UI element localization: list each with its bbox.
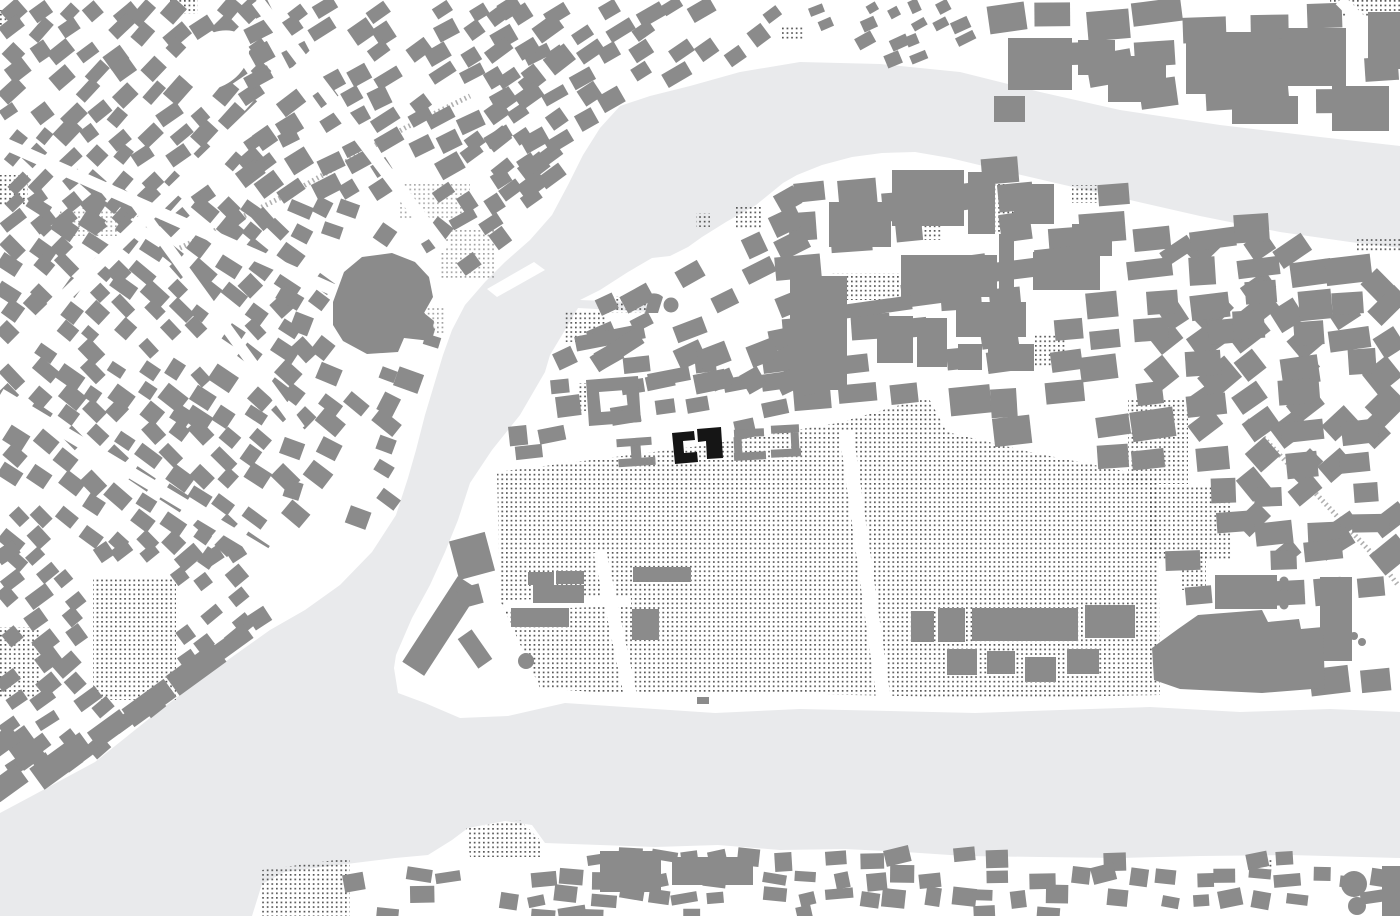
landmark-building bbox=[1320, 577, 1352, 661]
building bbox=[953, 846, 976, 862]
building bbox=[582, 909, 604, 916]
building bbox=[1254, 487, 1282, 507]
landmark-building bbox=[1332, 86, 1389, 131]
building bbox=[1360, 668, 1391, 693]
building bbox=[1186, 392, 1228, 417]
building bbox=[1250, 890, 1271, 910]
building bbox=[1079, 353, 1119, 382]
landmark-building bbox=[533, 585, 584, 603]
building bbox=[1135, 381, 1164, 406]
landmark-building bbox=[1382, 866, 1400, 916]
building bbox=[794, 871, 816, 883]
building bbox=[508, 425, 528, 446]
landmark-building bbox=[1072, 224, 1112, 256]
landmark-building bbox=[911, 611, 934, 642]
landmark-round-structure bbox=[1348, 897, 1366, 915]
landmark-building bbox=[633, 567, 691, 582]
landmark-building bbox=[956, 302, 1026, 337]
building bbox=[1353, 482, 1379, 503]
landmark-building bbox=[791, 432, 800, 449]
building bbox=[774, 852, 792, 872]
building bbox=[655, 398, 676, 415]
building bbox=[1097, 183, 1130, 207]
building bbox=[1132, 226, 1171, 252]
building bbox=[1131, 448, 1165, 470]
building bbox=[1211, 478, 1237, 504]
landmark-building bbox=[1368, 12, 1400, 69]
building bbox=[1233, 213, 1270, 244]
landmark-building bbox=[892, 170, 964, 226]
building bbox=[1050, 349, 1083, 373]
building bbox=[1348, 348, 1377, 375]
building bbox=[1314, 867, 1331, 881]
landmark-building bbox=[987, 651, 1015, 674]
building bbox=[1232, 310, 1265, 340]
building bbox=[553, 884, 577, 903]
landmark-building bbox=[917, 318, 947, 367]
stippled-area bbox=[782, 25, 804, 41]
building bbox=[1106, 888, 1128, 906]
landmark-building bbox=[1232, 96, 1298, 124]
building bbox=[1254, 520, 1293, 547]
building bbox=[1189, 292, 1230, 321]
landmark-building bbox=[968, 172, 995, 234]
building bbox=[973, 889, 993, 900]
building bbox=[1293, 320, 1324, 346]
landmark-building bbox=[1186, 32, 1279, 94]
building bbox=[531, 871, 558, 888]
landmark-building bbox=[1078, 40, 1115, 75]
building bbox=[1307, 3, 1343, 29]
building bbox=[1357, 576, 1385, 598]
landmark-building bbox=[771, 424, 799, 433]
building bbox=[1324, 254, 1373, 286]
landmark-building bbox=[511, 608, 569, 627]
stippled-area bbox=[1072, 185, 1100, 203]
landmark-round-structure bbox=[518, 653, 534, 669]
building bbox=[1010, 890, 1027, 909]
building bbox=[1046, 885, 1069, 904]
landmark-round-structure bbox=[1341, 871, 1367, 897]
landmark-building bbox=[1014, 184, 1054, 224]
building bbox=[1165, 550, 1200, 571]
landmark-building bbox=[672, 857, 753, 885]
building bbox=[1298, 289, 1334, 322]
building bbox=[499, 892, 519, 911]
stippled-area bbox=[735, 206, 763, 229]
building bbox=[1273, 873, 1301, 888]
landmark-building bbox=[734, 428, 764, 438]
building bbox=[986, 870, 1008, 883]
landmark-round-structure bbox=[1358, 638, 1366, 646]
building bbox=[550, 379, 570, 395]
landmark-round-structure bbox=[1280, 577, 1289, 586]
building bbox=[1097, 444, 1130, 470]
building bbox=[342, 872, 366, 893]
landmark-building bbox=[947, 649, 977, 675]
building bbox=[837, 178, 878, 206]
building bbox=[1248, 867, 1271, 879]
building bbox=[918, 872, 941, 889]
building bbox=[1339, 452, 1371, 474]
building bbox=[1085, 291, 1119, 320]
building bbox=[1146, 290, 1179, 316]
building bbox=[1270, 550, 1297, 570]
landmark-building bbox=[790, 276, 847, 390]
building bbox=[1213, 869, 1235, 883]
landmark-building bbox=[938, 608, 965, 642]
landmark-building bbox=[556, 571, 584, 584]
building bbox=[825, 850, 847, 865]
building bbox=[1054, 318, 1084, 341]
landmark-building bbox=[631, 445, 642, 460]
landmark-building bbox=[1025, 657, 1056, 682]
building bbox=[1340, 418, 1379, 446]
building bbox=[559, 868, 584, 886]
landmark-round-structure bbox=[1280, 589, 1289, 598]
landmark-building bbox=[829, 202, 891, 247]
landmark-building bbox=[994, 96, 1025, 122]
landmark-building bbox=[600, 851, 661, 892]
landmark-round-structure bbox=[664, 298, 679, 313]
landmark-building bbox=[528, 572, 554, 585]
landmark-building bbox=[901, 255, 997, 297]
building bbox=[1216, 511, 1249, 534]
building bbox=[1045, 379, 1086, 404]
landmark-building bbox=[958, 344, 982, 370]
building bbox=[1034, 2, 1070, 26]
building bbox=[1303, 539, 1343, 563]
building bbox=[1086, 8, 1131, 41]
landmark-building bbox=[697, 697, 709, 704]
building bbox=[1185, 350, 1222, 377]
building bbox=[1133, 317, 1169, 342]
building bbox=[973, 905, 995, 916]
landmark-building bbox=[771, 448, 801, 458]
building bbox=[1244, 280, 1277, 305]
building bbox=[1197, 873, 1214, 887]
landmark-round-structure bbox=[1280, 601, 1289, 610]
landmark-building bbox=[1108, 56, 1166, 102]
building bbox=[889, 382, 918, 405]
building bbox=[1331, 291, 1364, 315]
landmark-building bbox=[632, 609, 659, 640]
building bbox=[1155, 868, 1177, 884]
building bbox=[763, 886, 787, 902]
site-plan-stage bbox=[0, 0, 1400, 916]
landmark-building bbox=[734, 451, 766, 461]
building bbox=[683, 909, 700, 916]
building bbox=[1129, 407, 1176, 443]
building bbox=[1195, 446, 1230, 472]
building bbox=[1089, 329, 1121, 350]
building bbox=[591, 894, 617, 909]
landmark-building bbox=[1008, 38, 1072, 90]
building bbox=[623, 355, 651, 374]
stippled-area bbox=[696, 213, 710, 227]
building bbox=[410, 886, 435, 903]
landmark-building bbox=[1085, 605, 1135, 638]
building bbox=[1193, 894, 1210, 907]
building bbox=[1277, 378, 1320, 406]
building bbox=[987, 1, 1028, 34]
landmark-building bbox=[972, 608, 1078, 641]
building bbox=[860, 853, 884, 869]
building bbox=[555, 394, 582, 418]
landmark-building bbox=[1215, 575, 1277, 609]
building bbox=[1207, 318, 1236, 345]
building bbox=[1185, 585, 1213, 605]
landmark-building bbox=[999, 234, 1014, 291]
building bbox=[1188, 256, 1216, 286]
building bbox=[890, 865, 914, 883]
building bbox=[1275, 851, 1293, 866]
building bbox=[948, 384, 992, 416]
figure-ground-map bbox=[0, 0, 1400, 916]
landmark-round-structure bbox=[1350, 632, 1358, 640]
building bbox=[986, 850, 1009, 869]
building bbox=[990, 388, 1018, 418]
landmark-building bbox=[1033, 252, 1100, 290]
building bbox=[924, 886, 941, 907]
landmark-building bbox=[877, 316, 913, 363]
building bbox=[1285, 451, 1319, 479]
building bbox=[1071, 866, 1091, 885]
building bbox=[1352, 514, 1390, 533]
building bbox=[992, 415, 1032, 448]
landmark-building bbox=[1067, 649, 1099, 674]
building bbox=[860, 891, 881, 909]
building bbox=[706, 892, 724, 905]
landmark-building bbox=[1282, 28, 1346, 86]
stippled-area bbox=[1355, 238, 1400, 252]
landmark-building bbox=[988, 344, 1034, 371]
building bbox=[1129, 867, 1149, 887]
building bbox=[881, 888, 906, 909]
